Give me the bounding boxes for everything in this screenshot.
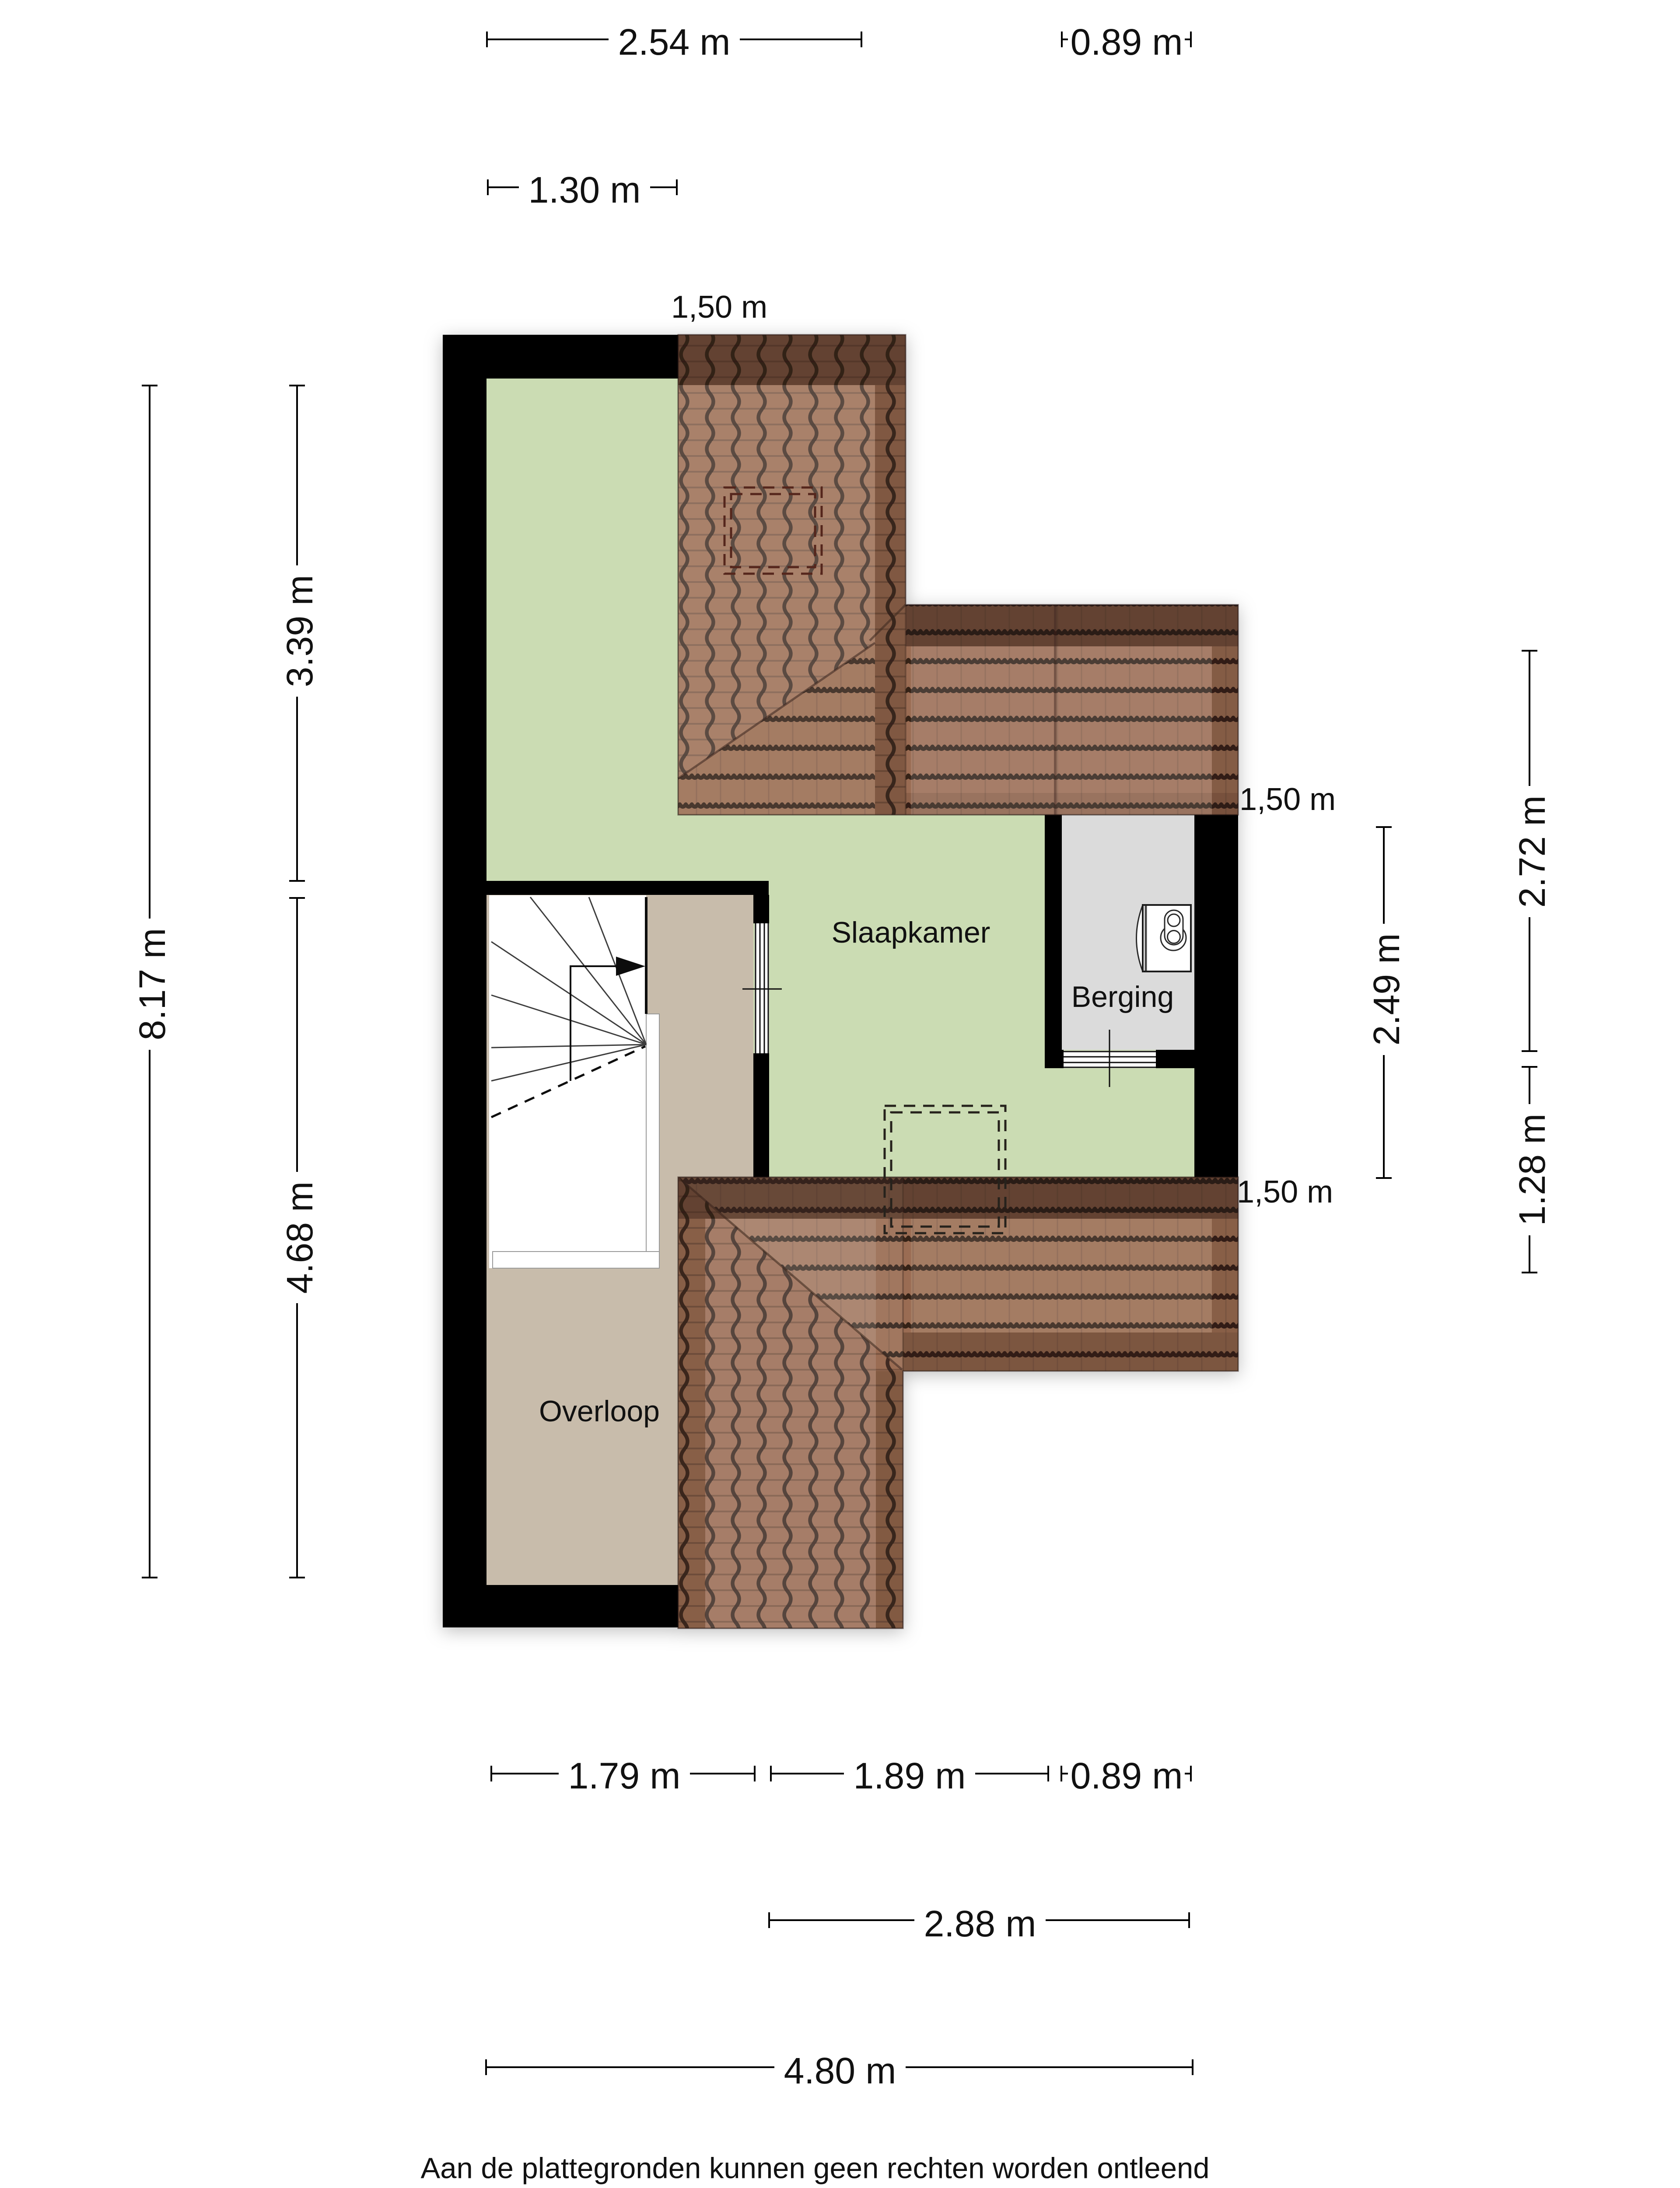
svg-text:1.28 m: 1.28 m	[1512, 1114, 1553, 1226]
svg-text:0.89 m: 0.89 m	[1071, 1755, 1183, 1796]
svg-text:1,50 m: 1,50 m	[671, 290, 767, 325]
svg-text:8.17 m: 8.17 m	[132, 928, 173, 1041]
svg-text:Aan de plattegronden kunnen ge: Aan de plattegronden kunnen geen rechten…	[421, 2152, 1210, 2185]
svg-text:1,50 m: 1,50 m	[1237, 1175, 1333, 1210]
svg-text:2.49 m: 2.49 m	[1366, 933, 1407, 1046]
svg-text:2.54 m: 2.54 m	[618, 21, 731, 63]
svg-text:4.68 m: 4.68 m	[279, 1182, 320, 1294]
svg-text:1.79 m: 1.79 m	[568, 1755, 681, 1796]
svg-text:0.89 m: 0.89 m	[1071, 21, 1183, 63]
svg-text:4.80 m: 4.80 m	[784, 2050, 896, 2091]
svg-text:Berging: Berging	[1071, 980, 1174, 1013]
svg-text:Overloop: Overloop	[539, 1395, 660, 1428]
svg-text:Slaapkamer: Slaapkamer	[832, 916, 990, 949]
svg-text:2.72 m: 2.72 m	[1512, 796, 1553, 908]
svg-text:3.39 m: 3.39 m	[279, 575, 320, 687]
svg-text:1,50 m: 1,50 m	[1239, 782, 1336, 817]
svg-text:1.30 m: 1.30 m	[528, 169, 641, 210]
svg-text:1.89 m: 1.89 m	[854, 1755, 966, 1796]
svg-text:© Zibber www.zibber.nl: © Zibber www.zibber.nl	[664, 2185, 964, 2188]
svg-text:2.88 m: 2.88 m	[924, 1903, 1036, 1944]
